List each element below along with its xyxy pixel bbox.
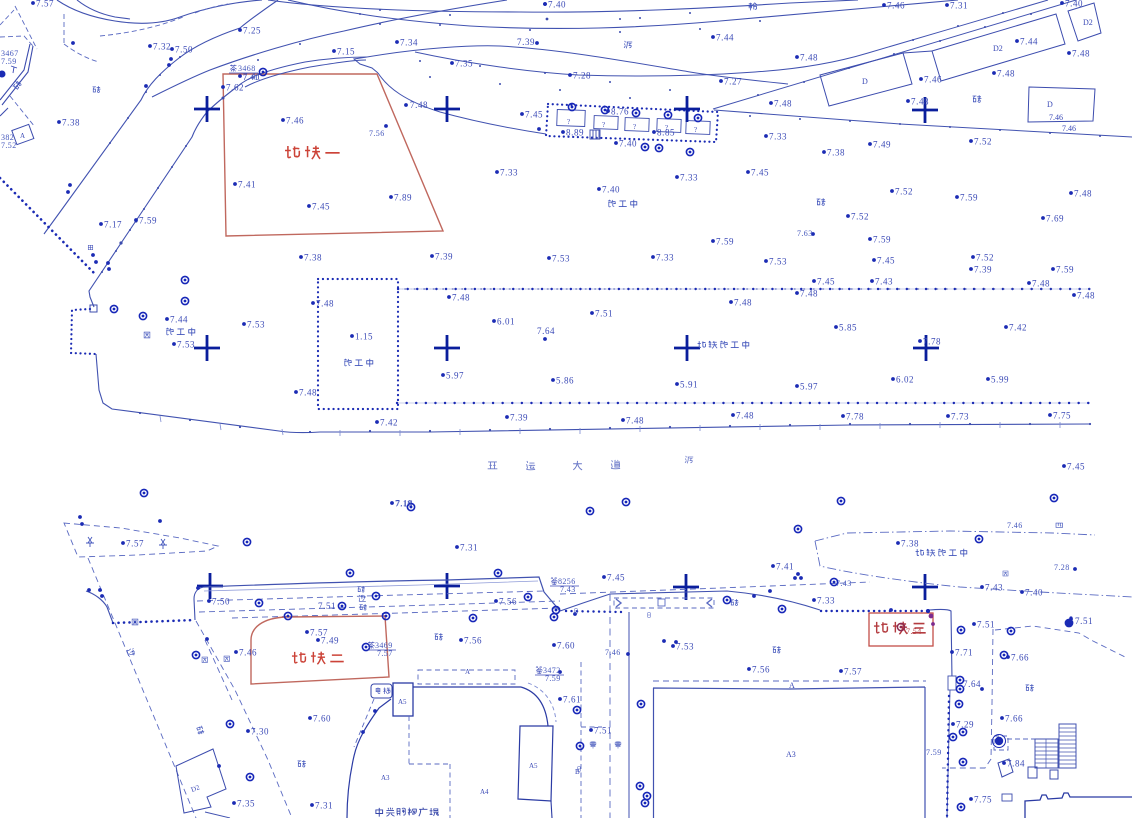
svg-text:7.48: 7.48 — [800, 288, 818, 298]
svg-text:7.89: 7.89 — [394, 192, 412, 202]
svg-text:7.50: 7.50 — [175, 44, 193, 54]
svg-text:7.48: 7.48 — [734, 297, 752, 307]
svg-text:7.60: 7.60 — [557, 640, 575, 650]
svg-text:7.30: 7.30 — [251, 726, 269, 736]
svg-text:7.25: 7.25 — [243, 25, 261, 35]
svg-text:?: ? — [665, 124, 668, 132]
svg-text:D: D — [862, 77, 868, 86]
svg-text:7.61: 7.61 — [563, 694, 581, 704]
svg-text:5.97: 5.97 — [800, 381, 818, 391]
svg-text:7.69: 7.69 — [1046, 213, 1064, 223]
svg-text:7.33: 7.33 — [680, 172, 698, 182]
svg-text:7.49: 7.49 — [873, 139, 891, 149]
svg-text:7.44: 7.44 — [170, 314, 188, 324]
svg-text:3468: 3468 — [238, 64, 256, 73]
svg-text:D: D — [1047, 100, 1053, 109]
svg-text:D2: D2 — [993, 44, 1003, 53]
svg-text:7.52: 7.52 — [895, 186, 913, 196]
svg-text:5.99: 5.99 — [991, 374, 1009, 384]
svg-text:5.86: 5.86 — [556, 375, 574, 385]
svg-text:7.46: 7.46 — [605, 648, 621, 657]
svg-text:7.57: 7.57 — [844, 666, 862, 676]
svg-text:7.56: 7.56 — [752, 664, 770, 674]
svg-text:7.33: 7.33 — [500, 167, 518, 177]
svg-text:7.42: 7.42 — [380, 417, 398, 427]
svg-text:A: A — [789, 681, 795, 690]
svg-text:7.40: 7.40 — [619, 138, 637, 148]
svg-text:7.73: 7.73 — [951, 411, 969, 421]
svg-text:7.48: 7.48 — [299, 387, 317, 397]
svg-text:7.48: 7.48 — [774, 98, 792, 108]
svg-text:7.46: 7.46 — [924, 74, 942, 84]
svg-text:7.53: 7.53 — [552, 253, 570, 263]
svg-text:7.39: 7.39 — [974, 264, 992, 274]
svg-text:7.53: 7.53 — [177, 339, 195, 349]
svg-text:7.39: 7.39 — [517, 37, 535, 47]
svg-text:7.57: 7.57 — [310, 627, 328, 637]
svg-text:7.50: 7.50 — [212, 596, 230, 606]
svg-text:7.41: 7.41 — [243, 73, 259, 82]
svg-text:7.48: 7.48 — [316, 298, 334, 308]
svg-text:7.15: 7.15 — [337, 46, 355, 56]
svg-text:7.51: 7.51 — [977, 619, 995, 629]
svg-text:7.59: 7.59 — [139, 215, 157, 225]
svg-text:7.59: 7.59 — [1056, 264, 1074, 274]
svg-text:5.97: 5.97 — [446, 370, 464, 380]
svg-text:7.59: 7.59 — [926, 748, 942, 757]
svg-text:7.31: 7.31 — [950, 0, 968, 10]
svg-text:A5: A5 — [398, 698, 407, 706]
svg-text:7.52: 7.52 — [974, 136, 992, 146]
svg-text:7.46: 7.46 — [1062, 124, 1076, 133]
svg-text:A4: A4 — [480, 788, 489, 796]
svg-text:7.66: 7.66 — [1005, 713, 1023, 723]
svg-text:7.56: 7.56 — [499, 596, 517, 606]
svg-text:A5: A5 — [529, 762, 538, 770]
svg-text:7.41: 7.41 — [238, 179, 256, 189]
svg-text:A3: A3 — [381, 774, 390, 782]
svg-text:7.48: 7.48 — [626, 415, 644, 425]
svg-text:7.59: 7.59 — [960, 192, 978, 202]
svg-text:7.59: 7.59 — [1, 57, 17, 66]
svg-text:7.27: 7.27 — [724, 76, 742, 86]
svg-text:7.17: 7.17 — [104, 219, 122, 229]
svg-text:7.44: 7.44 — [1020, 36, 1038, 46]
svg-text:7.48: 7.48 — [800, 52, 818, 62]
svg-text:7.59: 7.59 — [873, 234, 891, 244]
svg-text:7.45: 7.45 — [817, 276, 835, 286]
svg-text:7.51: 7.51 — [594, 725, 612, 735]
svg-text:7.34: 7.34 — [400, 37, 418, 47]
svg-text:7.29: 7.29 — [956, 719, 974, 729]
svg-text:7.38: 7.38 — [304, 252, 322, 262]
svg-text:7.59: 7.59 — [716, 236, 734, 246]
svg-text:7.75: 7.75 — [974, 794, 992, 804]
svg-text:7.56: 7.56 — [464, 635, 482, 645]
svg-text:7.53: 7.53 — [676, 641, 694, 651]
svg-text:5.91: 5.91 — [680, 379, 698, 389]
svg-text:7.57: 7.57 — [126, 538, 144, 548]
svg-text:7.40: 7.40 — [1065, 0, 1083, 8]
svg-text:7.62: 7.62 — [226, 82, 244, 92]
svg-text:7.33: 7.33 — [656, 252, 674, 262]
svg-text:D2: D2 — [1083, 18, 1093, 27]
svg-text:7.43: 7.43 — [836, 579, 852, 588]
svg-text:7.32: 7.32 — [153, 41, 171, 51]
svg-text:7.84: 7.84 — [1007, 758, 1025, 768]
svg-text:?: ? — [694, 126, 697, 134]
svg-text:7.28: 7.28 — [1054, 563, 1070, 572]
svg-text:7.44: 7.44 — [716, 32, 734, 42]
svg-text:7.46: 7.46 — [887, 0, 905, 10]
svg-text:7.51: 7.51 — [318, 601, 336, 611]
svg-text:7.35: 7.35 — [237, 798, 255, 808]
svg-text:7.60: 7.60 — [313, 713, 331, 723]
svg-text:7.63: 7.63 — [797, 229, 813, 238]
svg-text:7.48: 7.48 — [1077, 290, 1095, 300]
svg-text:7.48: 7.48 — [736, 410, 754, 420]
svg-text:A: A — [20, 132, 25, 140]
svg-text:7.48: 7.48 — [1072, 48, 1090, 58]
svg-text:7.75: 7.75 — [1053, 410, 1071, 420]
svg-text:7.71: 7.71 — [955, 647, 973, 657]
svg-text:1.15: 1.15 — [355, 331, 373, 341]
svg-text:7.52: 7.52 — [976, 252, 994, 262]
svg-text:?: ? — [633, 123, 636, 131]
svg-text:6.01: 6.01 — [497, 316, 515, 326]
svg-text:7.48: 7.48 — [1074, 188, 1092, 198]
svg-text:7.78: 7.78 — [846, 411, 864, 421]
svg-text:7.43: 7.43 — [875, 276, 893, 286]
svg-text:8.76: 8.76 — [611, 106, 629, 116]
svg-text:7.57: 7.57 — [36, 0, 54, 8]
svg-text:7.54: 7.54 — [906, 627, 922, 636]
svg-text:7.33: 7.33 — [817, 595, 835, 605]
svg-text:7.66: 7.66 — [1011, 652, 1029, 662]
svg-text:7.39: 7.39 — [510, 412, 528, 422]
svg-text:7.56: 7.56 — [369, 129, 385, 138]
svg-text:7.40: 7.40 — [1025, 587, 1043, 597]
svg-text:7.64: 7.64 — [963, 679, 981, 689]
svg-text:7.64: 7.64 — [537, 326, 555, 336]
svg-text:5.85: 5.85 — [839, 322, 857, 332]
svg-text:7.38: 7.38 — [827, 147, 845, 157]
svg-text:7.48: 7.48 — [1032, 278, 1050, 288]
svg-text:7.45: 7.45 — [1067, 461, 1085, 471]
svg-text:7.78: 7.78 — [923, 336, 941, 346]
svg-text:?: ? — [567, 118, 570, 126]
svg-text:7.42: 7.42 — [1009, 322, 1027, 332]
svg-text:7.53: 7.53 — [769, 256, 787, 266]
svg-text:7.53: 7.53 — [247, 319, 265, 329]
svg-text:7.28: 7.28 — [573, 70, 591, 80]
svg-text:7.33: 7.33 — [769, 131, 787, 141]
svg-text:7.41: 7.41 — [776, 561, 794, 571]
svg-text:7.45: 7.45 — [312, 201, 330, 211]
svg-text:7.46: 7.46 — [286, 115, 304, 125]
svg-text:7.45: 7.45 — [877, 255, 895, 265]
svg-text:A3: A3 — [786, 750, 796, 759]
svg-text:7.31: 7.31 — [315, 800, 333, 810]
svg-text:7.52: 7.52 — [851, 211, 869, 221]
svg-text:B: B — [575, 768, 580, 776]
svg-text:6.02: 6.02 — [896, 374, 914, 384]
svg-text:7.43: 7.43 — [985, 582, 1003, 592]
svg-text:7.35: 7.35 — [455, 58, 473, 68]
svg-text:7.48: 7.48 — [997, 68, 1015, 78]
svg-text:7.46: 7.46 — [1007, 521, 1023, 530]
svg-text:7.48: 7.48 — [410, 100, 428, 110]
svg-text:8.89: 8.89 — [566, 127, 584, 137]
svg-text:7.31: 7.31 — [460, 542, 478, 552]
svg-text:?: ? — [602, 121, 605, 129]
svg-text:7.45: 7.45 — [525, 109, 543, 119]
svg-text:7.48: 7.48 — [911, 96, 929, 106]
svg-text:7.51: 7.51 — [595, 308, 613, 318]
svg-text:7.39: 7.39 — [435, 251, 453, 261]
svg-text:7.45: 7.45 — [751, 167, 769, 177]
svg-text:7.46: 7.46 — [1049, 113, 1063, 122]
svg-text:7.38: 7.38 — [62, 117, 80, 127]
svg-text:A: A — [465, 668, 470, 676]
svg-text:7.40: 7.40 — [602, 184, 620, 194]
svg-text:D2: D2 — [190, 783, 201, 794]
svg-text:7.46: 7.46 — [239, 647, 257, 657]
svg-text:7.51: 7.51 — [1075, 616, 1093, 626]
svg-text:7.38: 7.38 — [901, 538, 919, 548]
svg-text:7.52: 7.52 — [1, 141, 17, 150]
svg-text:7.40: 7.40 — [548, 0, 566, 9]
svg-text:7.48: 7.48 — [452, 292, 470, 302]
svg-text:7.18: 7.18 — [396, 499, 412, 508]
svg-text:7.45: 7.45 — [607, 572, 625, 582]
